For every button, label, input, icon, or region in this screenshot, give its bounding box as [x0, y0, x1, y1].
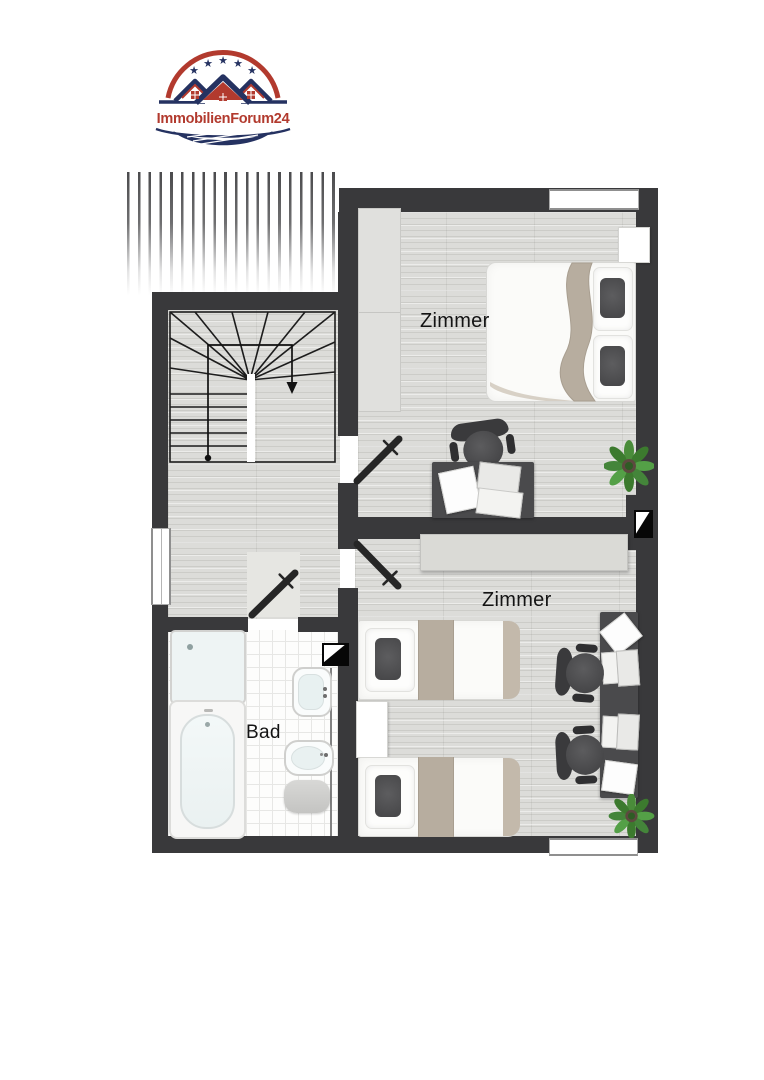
- staircase: [168, 308, 340, 466]
- floor-plan-page: ★ ★ ★ ★ ★ ImmobilienForum24: [0, 0, 764, 1080]
- wall-hall-rooms-upper: [338, 212, 358, 436]
- svg-text:★: ★: [218, 54, 228, 67]
- nightstand-top-room: [618, 227, 650, 263]
- roof-slope-hatch-icon: [127, 172, 343, 299]
- window-bottom: [549, 838, 638, 856]
- plant-icon: [604, 440, 654, 492]
- nightstand-bottom-room: [356, 701, 388, 758]
- office-chair-bottom-1: [554, 642, 610, 703]
- stair-down-arrow-icon: [287, 382, 298, 394]
- wash-basin-icon: [292, 667, 332, 717]
- double-bed: [486, 262, 636, 402]
- stair-winders: [170, 312, 335, 380]
- svg-text:★: ★: [233, 57, 243, 70]
- bed-blanket-icon: [418, 757, 454, 837]
- bottom-room-label: Zimmer: [482, 589, 552, 612]
- window-left: [151, 528, 171, 605]
- top-room-label: Zimmer: [420, 310, 490, 333]
- wardrobe: [358, 208, 401, 412]
- toilet-icon: [284, 740, 334, 776]
- bed-cushion: [600, 346, 625, 386]
- bed-foot-cap: [503, 758, 520, 836]
- chimney-shaft-icon: [634, 510, 653, 538]
- window-top: [549, 189, 639, 210]
- laptop-screen-icon: [616, 713, 640, 750]
- stair-start-dot: [205, 455, 211, 461]
- wall-hall-rooms-mid: [338, 483, 358, 549]
- bath-label: Bad: [246, 722, 281, 744]
- bath-mat-icon: [284, 780, 330, 813]
- logo-houses-icon: [159, 77, 287, 103]
- bed-cushion: [600, 278, 625, 318]
- svg-text:★: ★: [203, 57, 213, 70]
- wall-bath-top-right: [298, 617, 338, 632]
- wall-hall-rooms-lower: [338, 588, 358, 836]
- plant-icon: [608, 794, 655, 838]
- bath-door-swing-area: [247, 552, 300, 617]
- logo-field-swoosh-icon: [156, 129, 290, 145]
- svg-text:★: ★: [189, 64, 199, 77]
- brand-logo: ★ ★ ★ ★ ★ ImmobilienForum24: [147, 36, 299, 150]
- svg-text:★: ★: [247, 64, 257, 77]
- laptop-screen-icon: [616, 649, 640, 686]
- shower-icon: [170, 630, 246, 704]
- bed-foot-cap: [503, 621, 520, 699]
- brand-name: ImmobilienForum24: [157, 111, 290, 127]
- single-bed-1: [358, 620, 520, 700]
- bath-shaft-icon: [322, 643, 349, 666]
- single-bed-2: [358, 757, 520, 837]
- bed-cushion: [375, 775, 401, 817]
- bed-cushion: [375, 638, 401, 680]
- bathtub-icon: [169, 700, 246, 839]
- bed-blanket-icon: [418, 620, 454, 700]
- stair-newel-gap: [247, 374, 255, 462]
- laptop-keyboard-icon: [476, 487, 524, 518]
- sideboard: [420, 534, 628, 571]
- office-chair-bottom-2: [555, 725, 610, 786]
